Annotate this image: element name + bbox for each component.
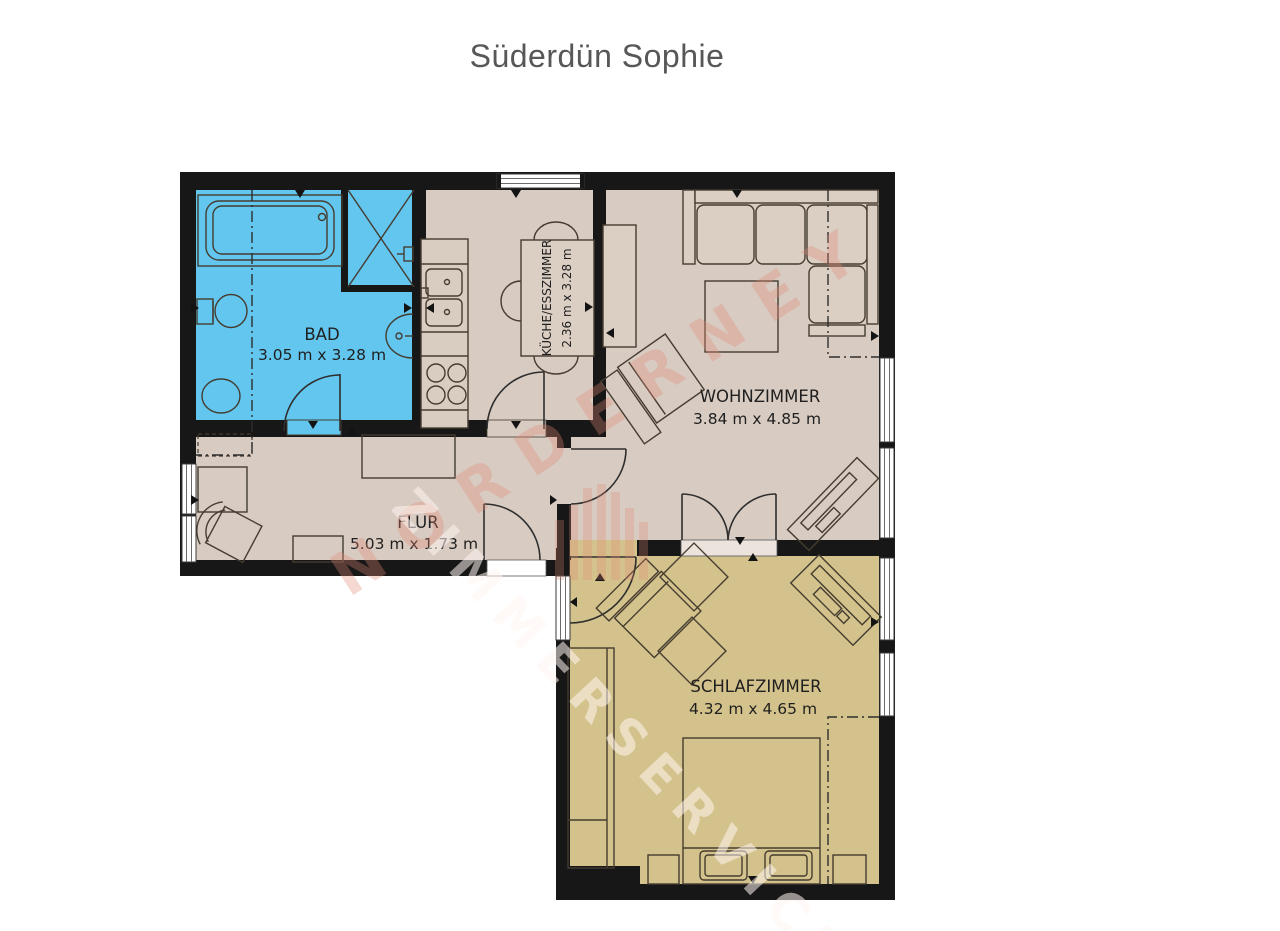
living-window-1: [880, 358, 894, 442]
hall-window-1: [182, 464, 196, 514]
hall-window-2: [182, 516, 196, 562]
label-schlafzimmer: SCHLAFZIMMER: [690, 677, 821, 696]
double-door-threshold: [681, 540, 777, 556]
dims-bad: 3.05 m x 3.28 m: [258, 346, 386, 364]
bathroom-floor: [196, 188, 413, 433]
label-wohnzimmer: WOHNZIMMER: [700, 387, 821, 406]
floorplan-drawing: BAD 3.05 m x 3.28 m KÜCHE/ESSZIMMER 2.36…: [0, 0, 1280, 931]
bedroom-window-2: [880, 653, 894, 716]
wall-left: [180, 172, 196, 576]
dims-kueche: 2.36 m x 3.28 m: [560, 248, 574, 347]
bedroom-window-1: [880, 558, 894, 640]
label-kueche: KÜCHE/ESSZIMMER: [538, 240, 554, 357]
label-bad: BAD: [304, 325, 339, 344]
living-window-2: [880, 448, 894, 538]
dims-schlafzimmer: 4.32 m x 4.65 m: [689, 700, 817, 718]
floorplan-page: Süderdün Sophie: [0, 0, 1280, 931]
kitchen-window: [497, 174, 584, 188]
living-cabinet: [603, 225, 636, 347]
dims-wohnzimmer: 3.84 m x 4.85 m: [693, 410, 821, 428]
wall-shower-bottom: [341, 285, 414, 292]
